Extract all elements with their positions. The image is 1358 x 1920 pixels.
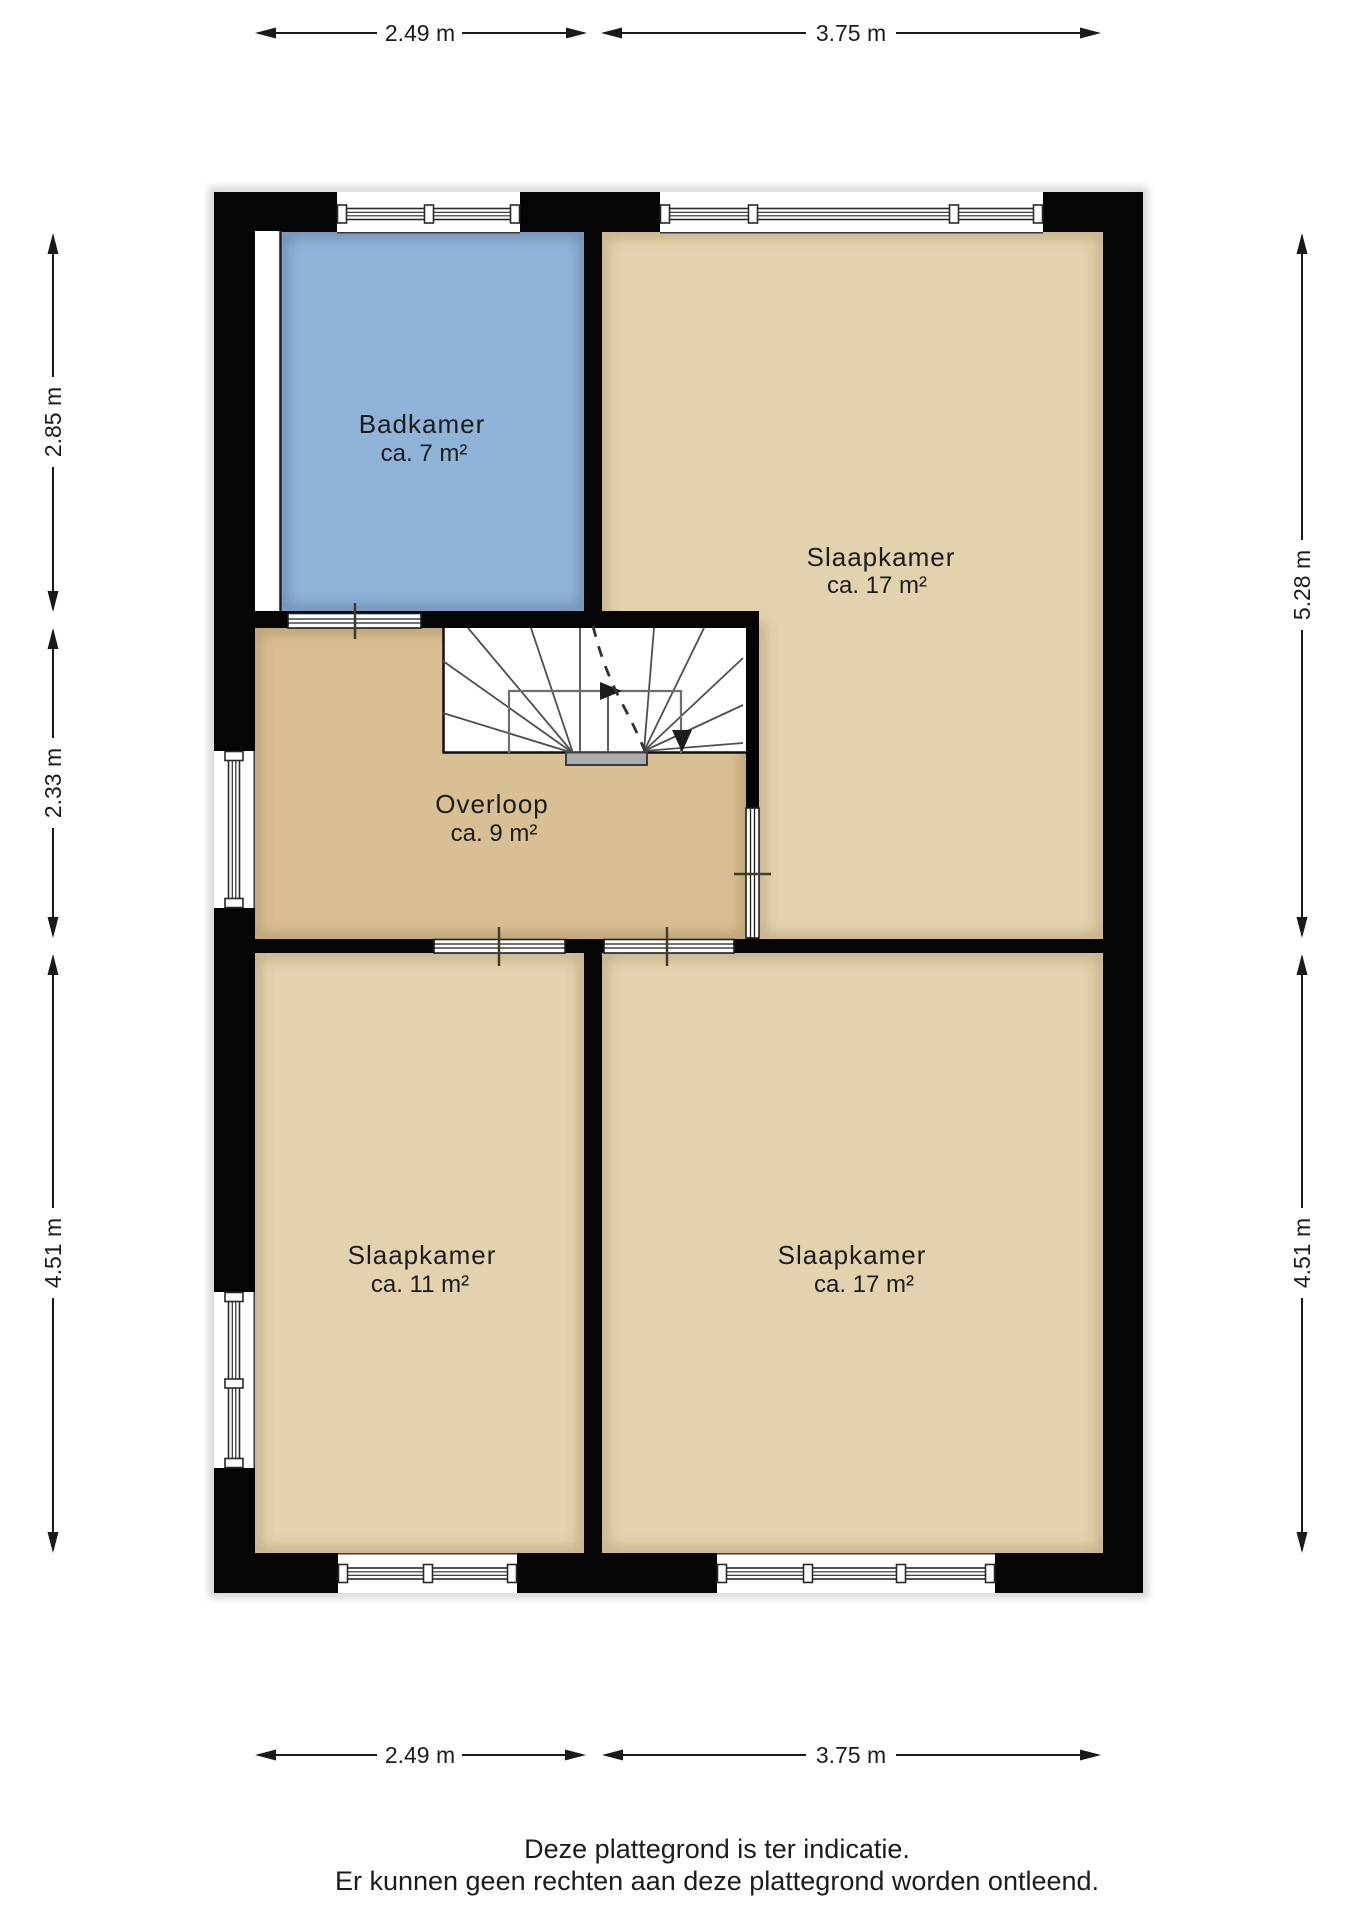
svg-text:Slaapkamer: Slaapkamer <box>348 1240 497 1270</box>
svg-text:2.85 m: 2.85 m <box>40 387 66 457</box>
svg-text:3.75 m: 3.75 m <box>816 20 886 46</box>
svg-text:2.49 m: 2.49 m <box>385 20 455 46</box>
svg-text:4.51 m: 4.51 m <box>40 1218 66 1288</box>
svg-text:2.33 m: 2.33 m <box>40 748 66 818</box>
svg-text:4.51 m: 4.51 m <box>1289 1218 1315 1288</box>
svg-text:ca. 9 m²: ca. 9 m² <box>451 820 538 847</box>
svg-text:Slaapkamer: Slaapkamer <box>807 542 956 572</box>
svg-text:2.49 m: 2.49 m <box>385 1742 455 1768</box>
svg-text:ca. 17 m²: ca. 17 m² <box>814 1271 914 1298</box>
svg-text:Er kunnen geen rechten aan dez: Er kunnen geen rechten aan deze plattegr… <box>335 1866 1099 1896</box>
svg-text:Overloop: Overloop <box>435 789 549 819</box>
svg-text:ca. 17 m²: ca. 17 m² <box>827 572 927 599</box>
svg-text:Deze plattegrond is ter indica: Deze plattegrond is ter indicatie. <box>524 1834 910 1864</box>
svg-text:Badkamer: Badkamer <box>359 409 486 439</box>
svg-text:Slaapkamer: Slaapkamer <box>778 1240 927 1270</box>
svg-text:ca. 11 m²: ca. 11 m² <box>371 1271 469 1298</box>
svg-text:3.75 m: 3.75 m <box>816 1742 886 1768</box>
svg-text:ca. 7 m²: ca. 7 m² <box>381 440 468 467</box>
svg-text:5.28 m: 5.28 m <box>1289 550 1315 620</box>
